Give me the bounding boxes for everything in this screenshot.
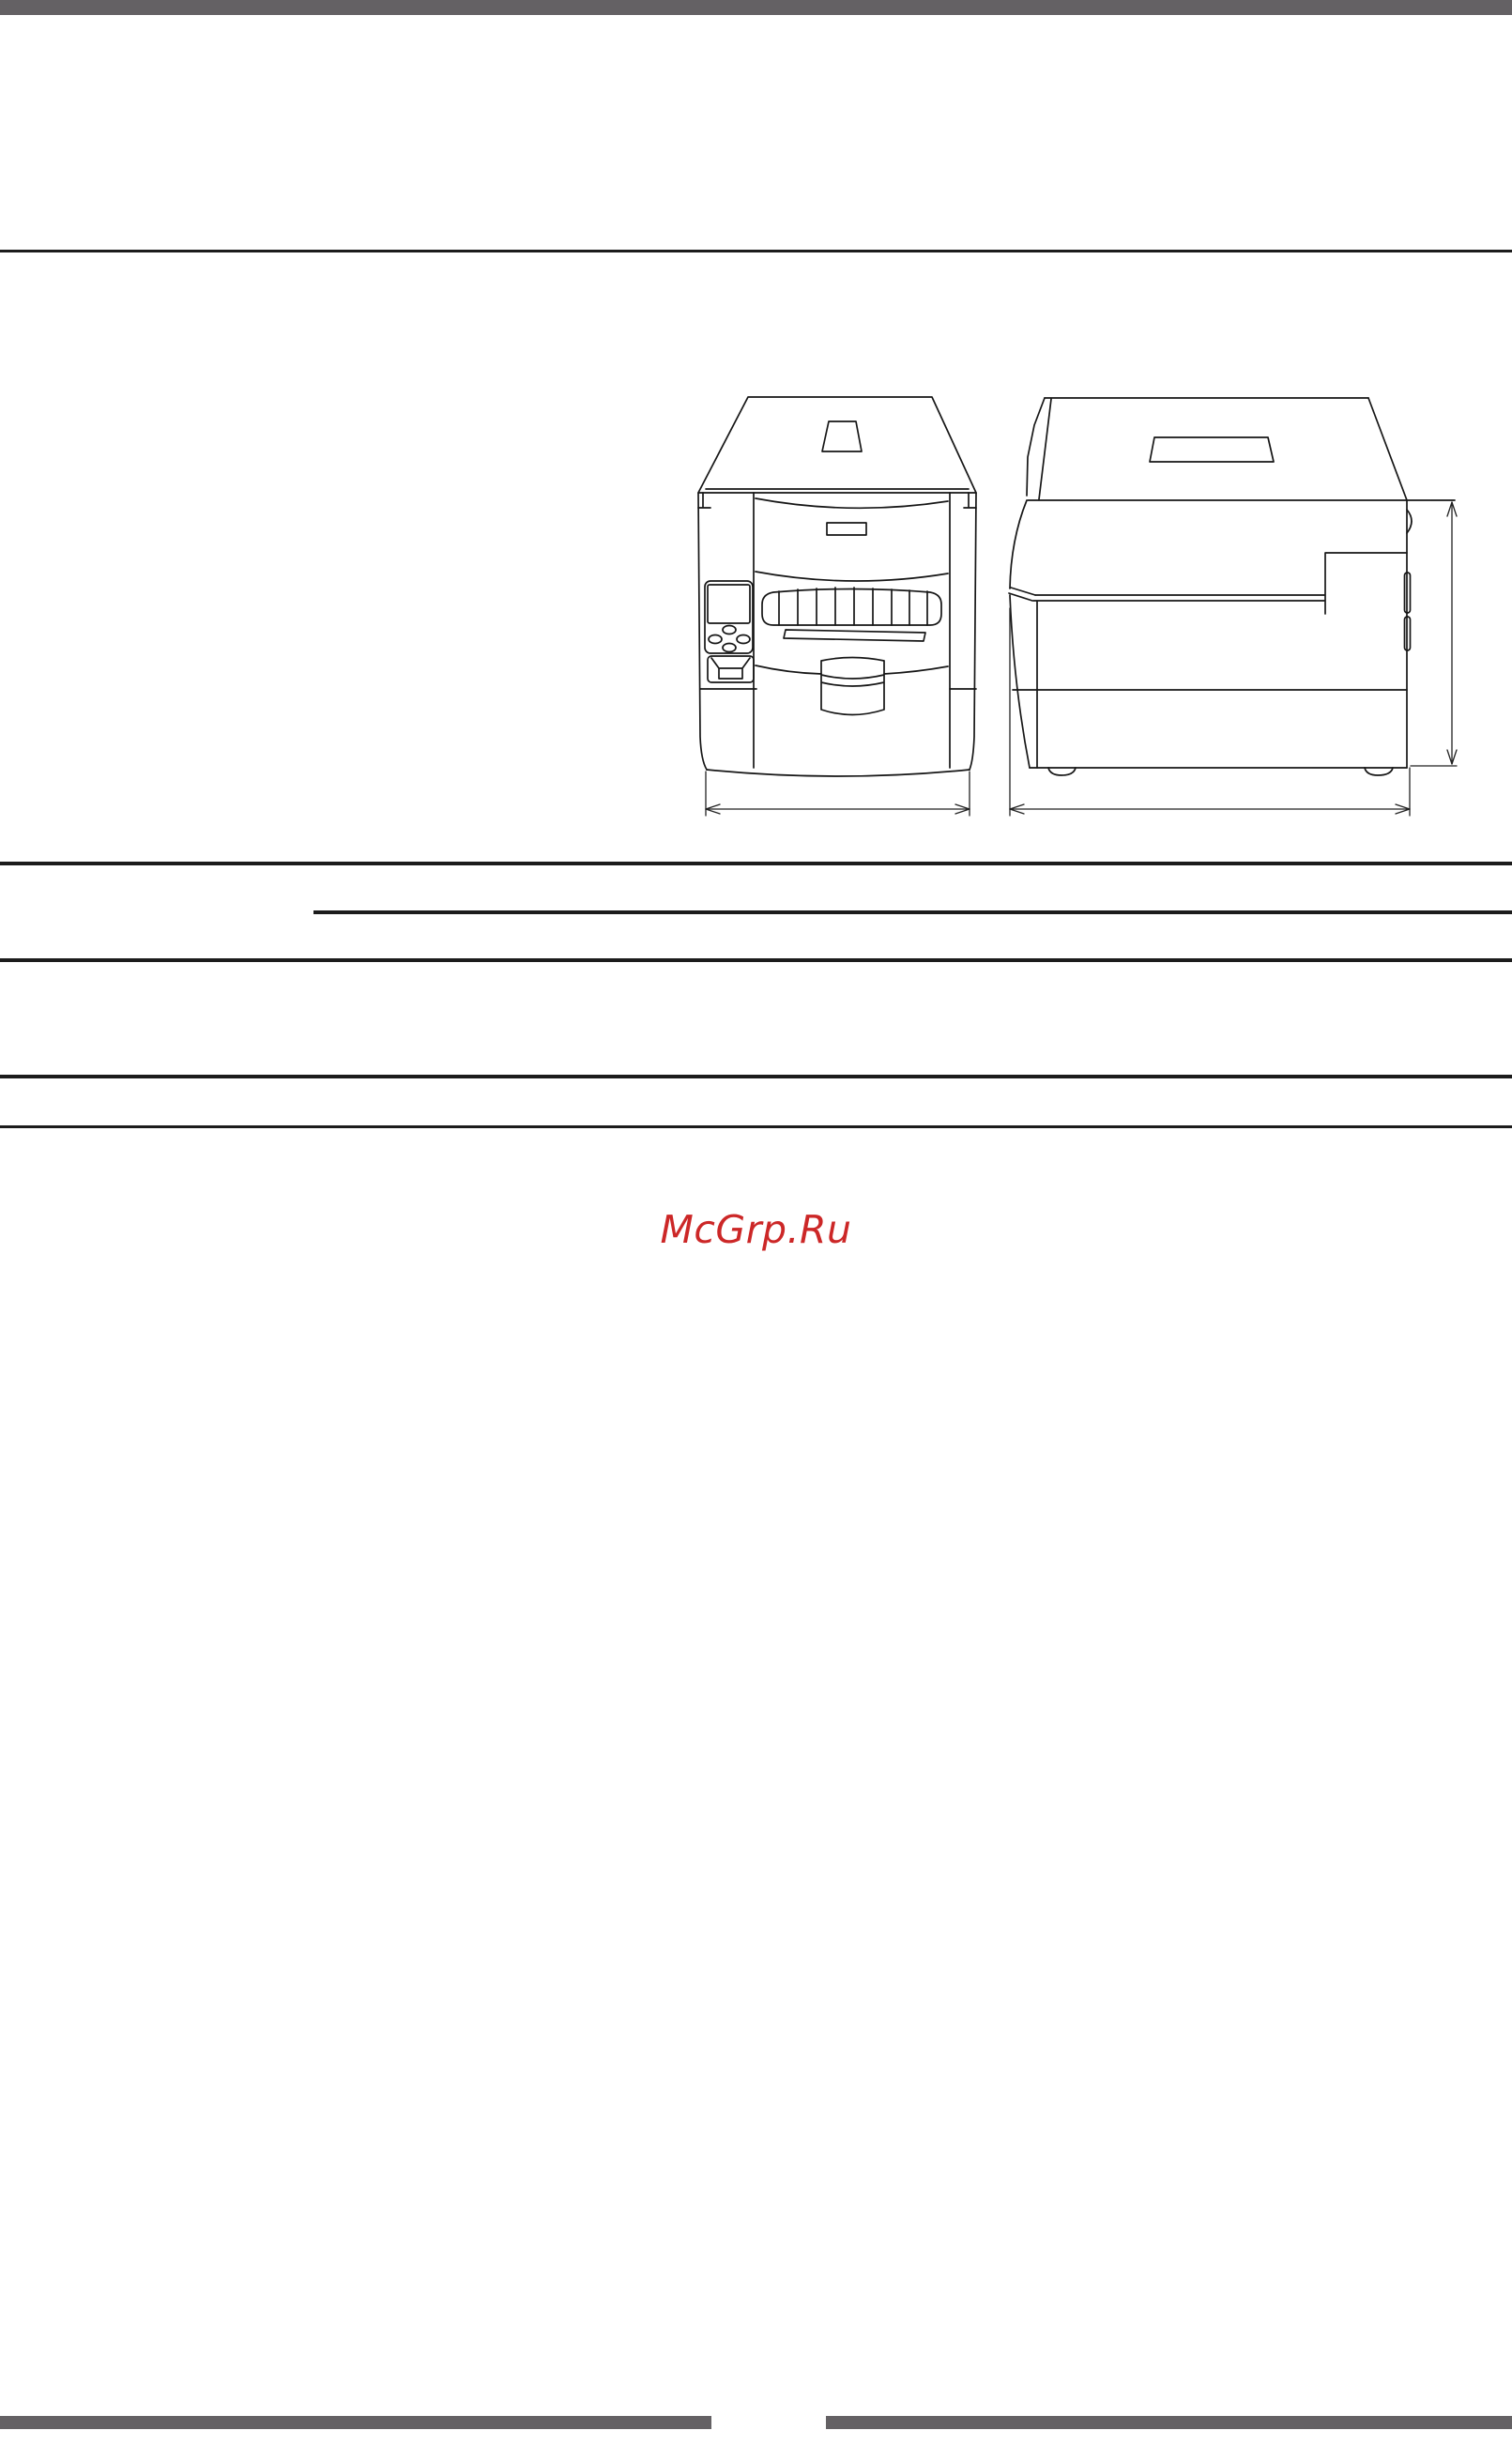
side-rear-slope: [1368, 398, 1407, 500]
front-cover-lower-arc: [756, 572, 948, 581]
watermark-text: McGrp.Ru: [0, 1207, 1512, 1252]
front-cover-upper-arc: [756, 498, 948, 508]
top-header-bar: [0, 0, 1512, 15]
front-width-dimension: [706, 772, 970, 816]
table-rule-lower: [0, 1075, 1512, 1078]
side-handle-recess: [1150, 437, 1274, 462]
printer-side-view: [1009, 398, 1455, 775]
footer-bar-left: [0, 2416, 711, 2429]
operation-panel-buttons: [709, 626, 750, 652]
front-lower-slot-inset: [711, 658, 750, 679]
table-rule-top: [0, 862, 1512, 865]
front-display-window: [827, 523, 866, 535]
height-dimension: [1411, 502, 1457, 766]
document-page: McGrp.Ru: [0, 0, 1512, 2461]
side-front-curve: [1010, 500, 1030, 768]
side-exit-beak: [1009, 588, 1035, 601]
front-media-hub: [821, 658, 884, 715]
side-depth-dimension: [1010, 608, 1410, 816]
front-top-face: [698, 397, 976, 493]
front-roller-strip: [762, 589, 941, 626]
front-bottom-edge: [707, 770, 970, 776]
front-right-edge: [970, 493, 976, 770]
front-roller-ribs: [779, 588, 927, 625]
front-door-curve: [756, 665, 948, 674]
side-feet: [1048, 768, 1393, 775]
front-paper-exit-slot: [784, 630, 925, 641]
header-rule: [0, 250, 1512, 252]
printer-front-view: [698, 397, 976, 776]
printer-drawing: [698, 397, 1457, 816]
side-interface-recess: [1325, 553, 1407, 614]
table-rule-partial: [313, 910, 1512, 914]
printer-dimensions-figure: [657, 375, 1502, 845]
front-left-corner-cap: [698, 493, 710, 508]
table-rule-bottom: [0, 1125, 1512, 1128]
side-front-lid-inner-edge: [1039, 399, 1051, 499]
front-right-corner-cap: [964, 493, 976, 508]
side-exit-tray-lip: [1033, 595, 1324, 601]
dimension-lines: [706, 502, 1457, 816]
footer-bar-right: [826, 2416, 1512, 2429]
front-handle-opening: [822, 421, 862, 451]
operation-panel-lcd: [708, 585, 750, 623]
table-rule-mid: [0, 958, 1512, 962]
